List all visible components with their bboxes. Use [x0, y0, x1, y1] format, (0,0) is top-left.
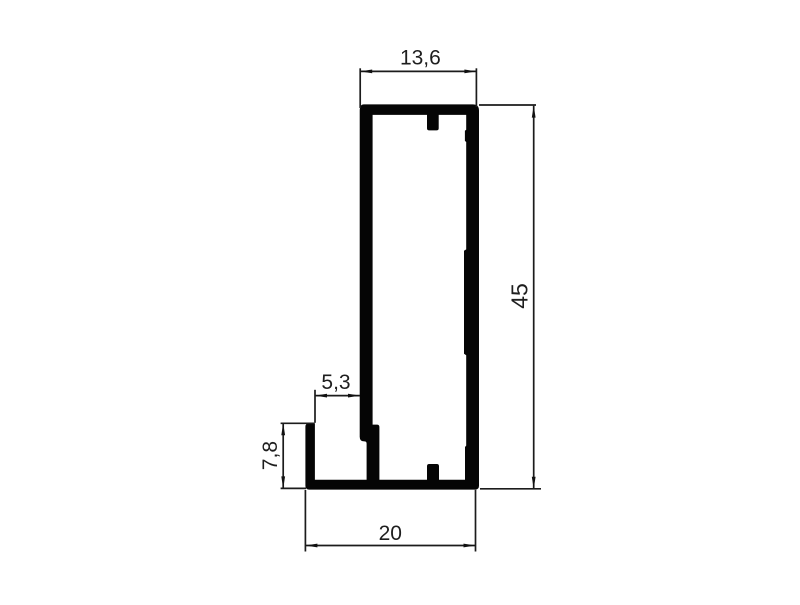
svg-text:5,3: 5,3	[321, 371, 350, 394]
svg-text:7,8: 7,8	[259, 441, 282, 470]
svg-text:45: 45	[507, 283, 533, 309]
svg-text:20: 20	[379, 522, 402, 545]
svg-text:13,6: 13,6	[400, 46, 441, 69]
